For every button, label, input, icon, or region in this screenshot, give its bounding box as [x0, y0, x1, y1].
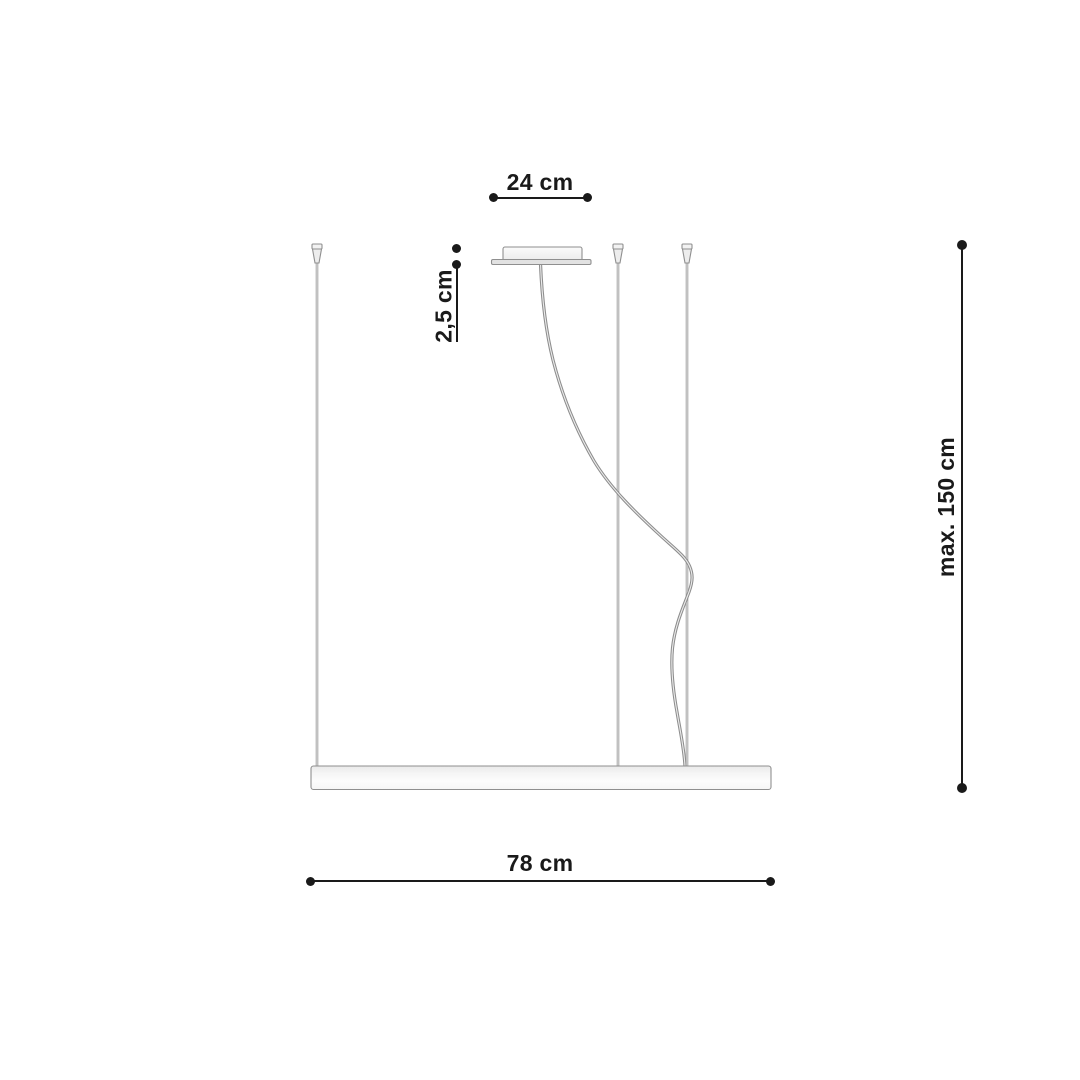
dim-canopy-width-dot-right	[583, 193, 592, 202]
lamp-bar	[311, 766, 771, 790]
dim-bar-length-dot-right	[766, 877, 775, 886]
canopy	[492, 247, 592, 265]
dim-suspension-line	[961, 245, 963, 788]
fixture-drawing	[0, 0, 1080, 1080]
power-cable	[541, 264, 693, 766]
power-cable-highlight	[541, 264, 693, 766]
pendant-lamp-dimension-diagram: 24 cm 2,5 cm max. 150 cm 78 cm	[0, 0, 1080, 1080]
dim-canopy-width-label: 24 cm	[490, 169, 590, 195]
dim-bar-length-dot-left	[306, 877, 315, 886]
dim-canopy-height-label: 2,5 cm	[431, 269, 457, 344]
dim-canopy-height-dot-top	[452, 244, 461, 253]
hanger-cone-right	[683, 249, 692, 263]
power-cable-stroke	[541, 264, 693, 766]
canopy-body	[503, 247, 582, 261]
dim-suspension-dot-top	[957, 240, 967, 250]
hanger-cap-middle	[613, 244, 623, 249]
dim-bar-length-line	[310, 880, 770, 882]
dim-suspension-label: max. 150 cm	[933, 432, 959, 582]
hanger-cone-middle	[614, 249, 623, 263]
dim-bar-length-label: 78 cm	[490, 850, 590, 876]
hanger-left	[312, 244, 322, 767]
hanger-cone-left	[313, 249, 322, 263]
hanger-middle	[613, 244, 623, 767]
hanger-cap-left	[312, 244, 322, 249]
hanger-right	[682, 244, 692, 767]
hanger-cap-right	[682, 244, 692, 249]
dim-suspension-dot-bottom	[957, 783, 967, 793]
dim-canopy-width-dot-left	[489, 193, 498, 202]
dim-canopy-width-line	[493, 197, 587, 199]
canopy-base-plate	[492, 260, 592, 265]
